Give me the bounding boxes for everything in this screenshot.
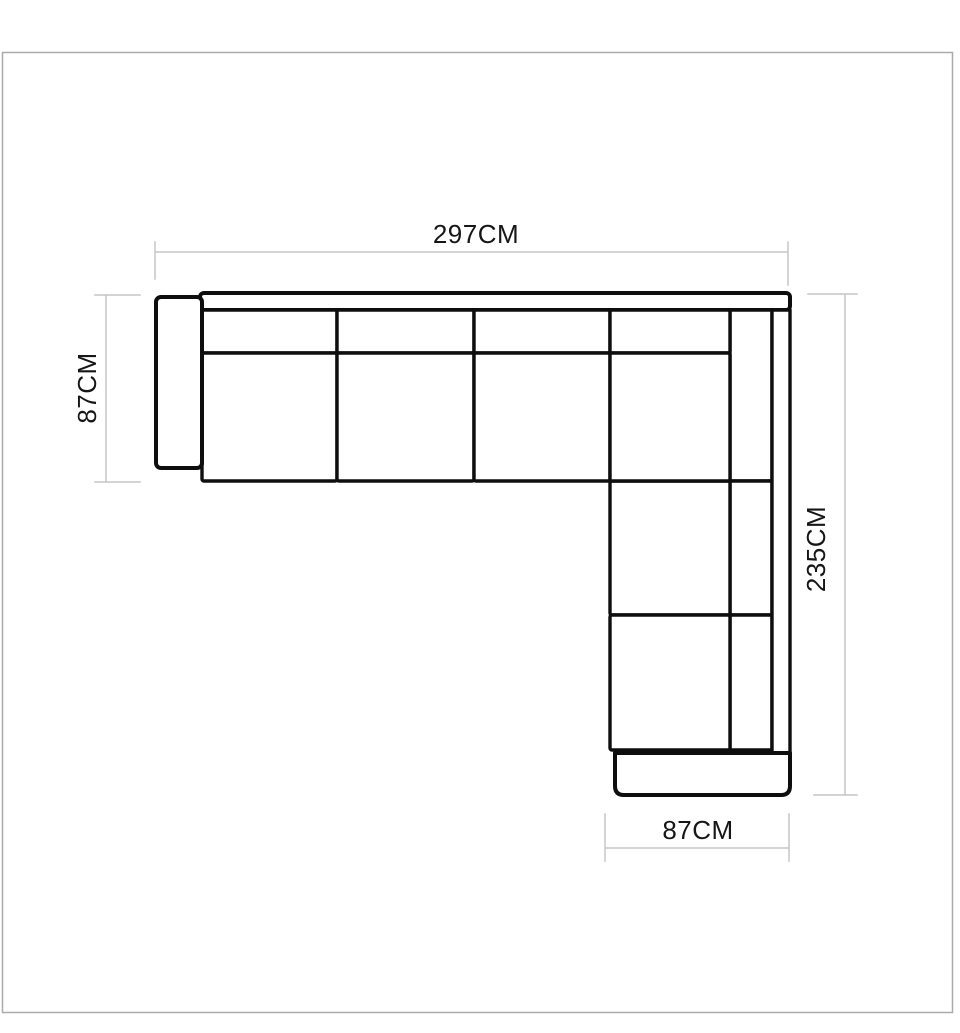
bottom-armrest (615, 753, 790, 795)
dimension-label-top: 297CM (433, 219, 519, 249)
seat-cushion-2 (337, 353, 474, 481)
back-cushion-2 (337, 310, 474, 353)
seat-cushion-4 (610, 353, 730, 481)
seat-cushion-3 (474, 353, 610, 481)
back-cushion-1 (202, 310, 337, 353)
dimension-label-left: 87CM (72, 352, 102, 423)
back-cushion-4 (610, 310, 730, 353)
corner-back-cushion-lower (730, 615, 772, 750)
sofa-right-rail (772, 310, 790, 753)
back-cushion-3 (474, 310, 610, 353)
sofa-back-rail (200, 293, 790, 310)
corner-back-cushion-upper (730, 310, 772, 481)
chaise-seat-cushion-2 (610, 615, 730, 750)
sofa-outline (156, 293, 790, 795)
seat-cushion-1 (202, 353, 337, 481)
sofa-dimension-diagram: 297CM 87CM 235CM 87CM (0, 0, 960, 1033)
dimension-label-bottom: 87CM (662, 815, 733, 845)
corner-back-cushion-middle (730, 481, 772, 615)
dimension-label-right: 235CM (801, 506, 831, 592)
left-armrest (156, 297, 202, 468)
chaise-seat-cushion-1 (610, 481, 730, 615)
diagram-page: 297CM 87CM 235CM 87CM (0, 0, 960, 1033)
